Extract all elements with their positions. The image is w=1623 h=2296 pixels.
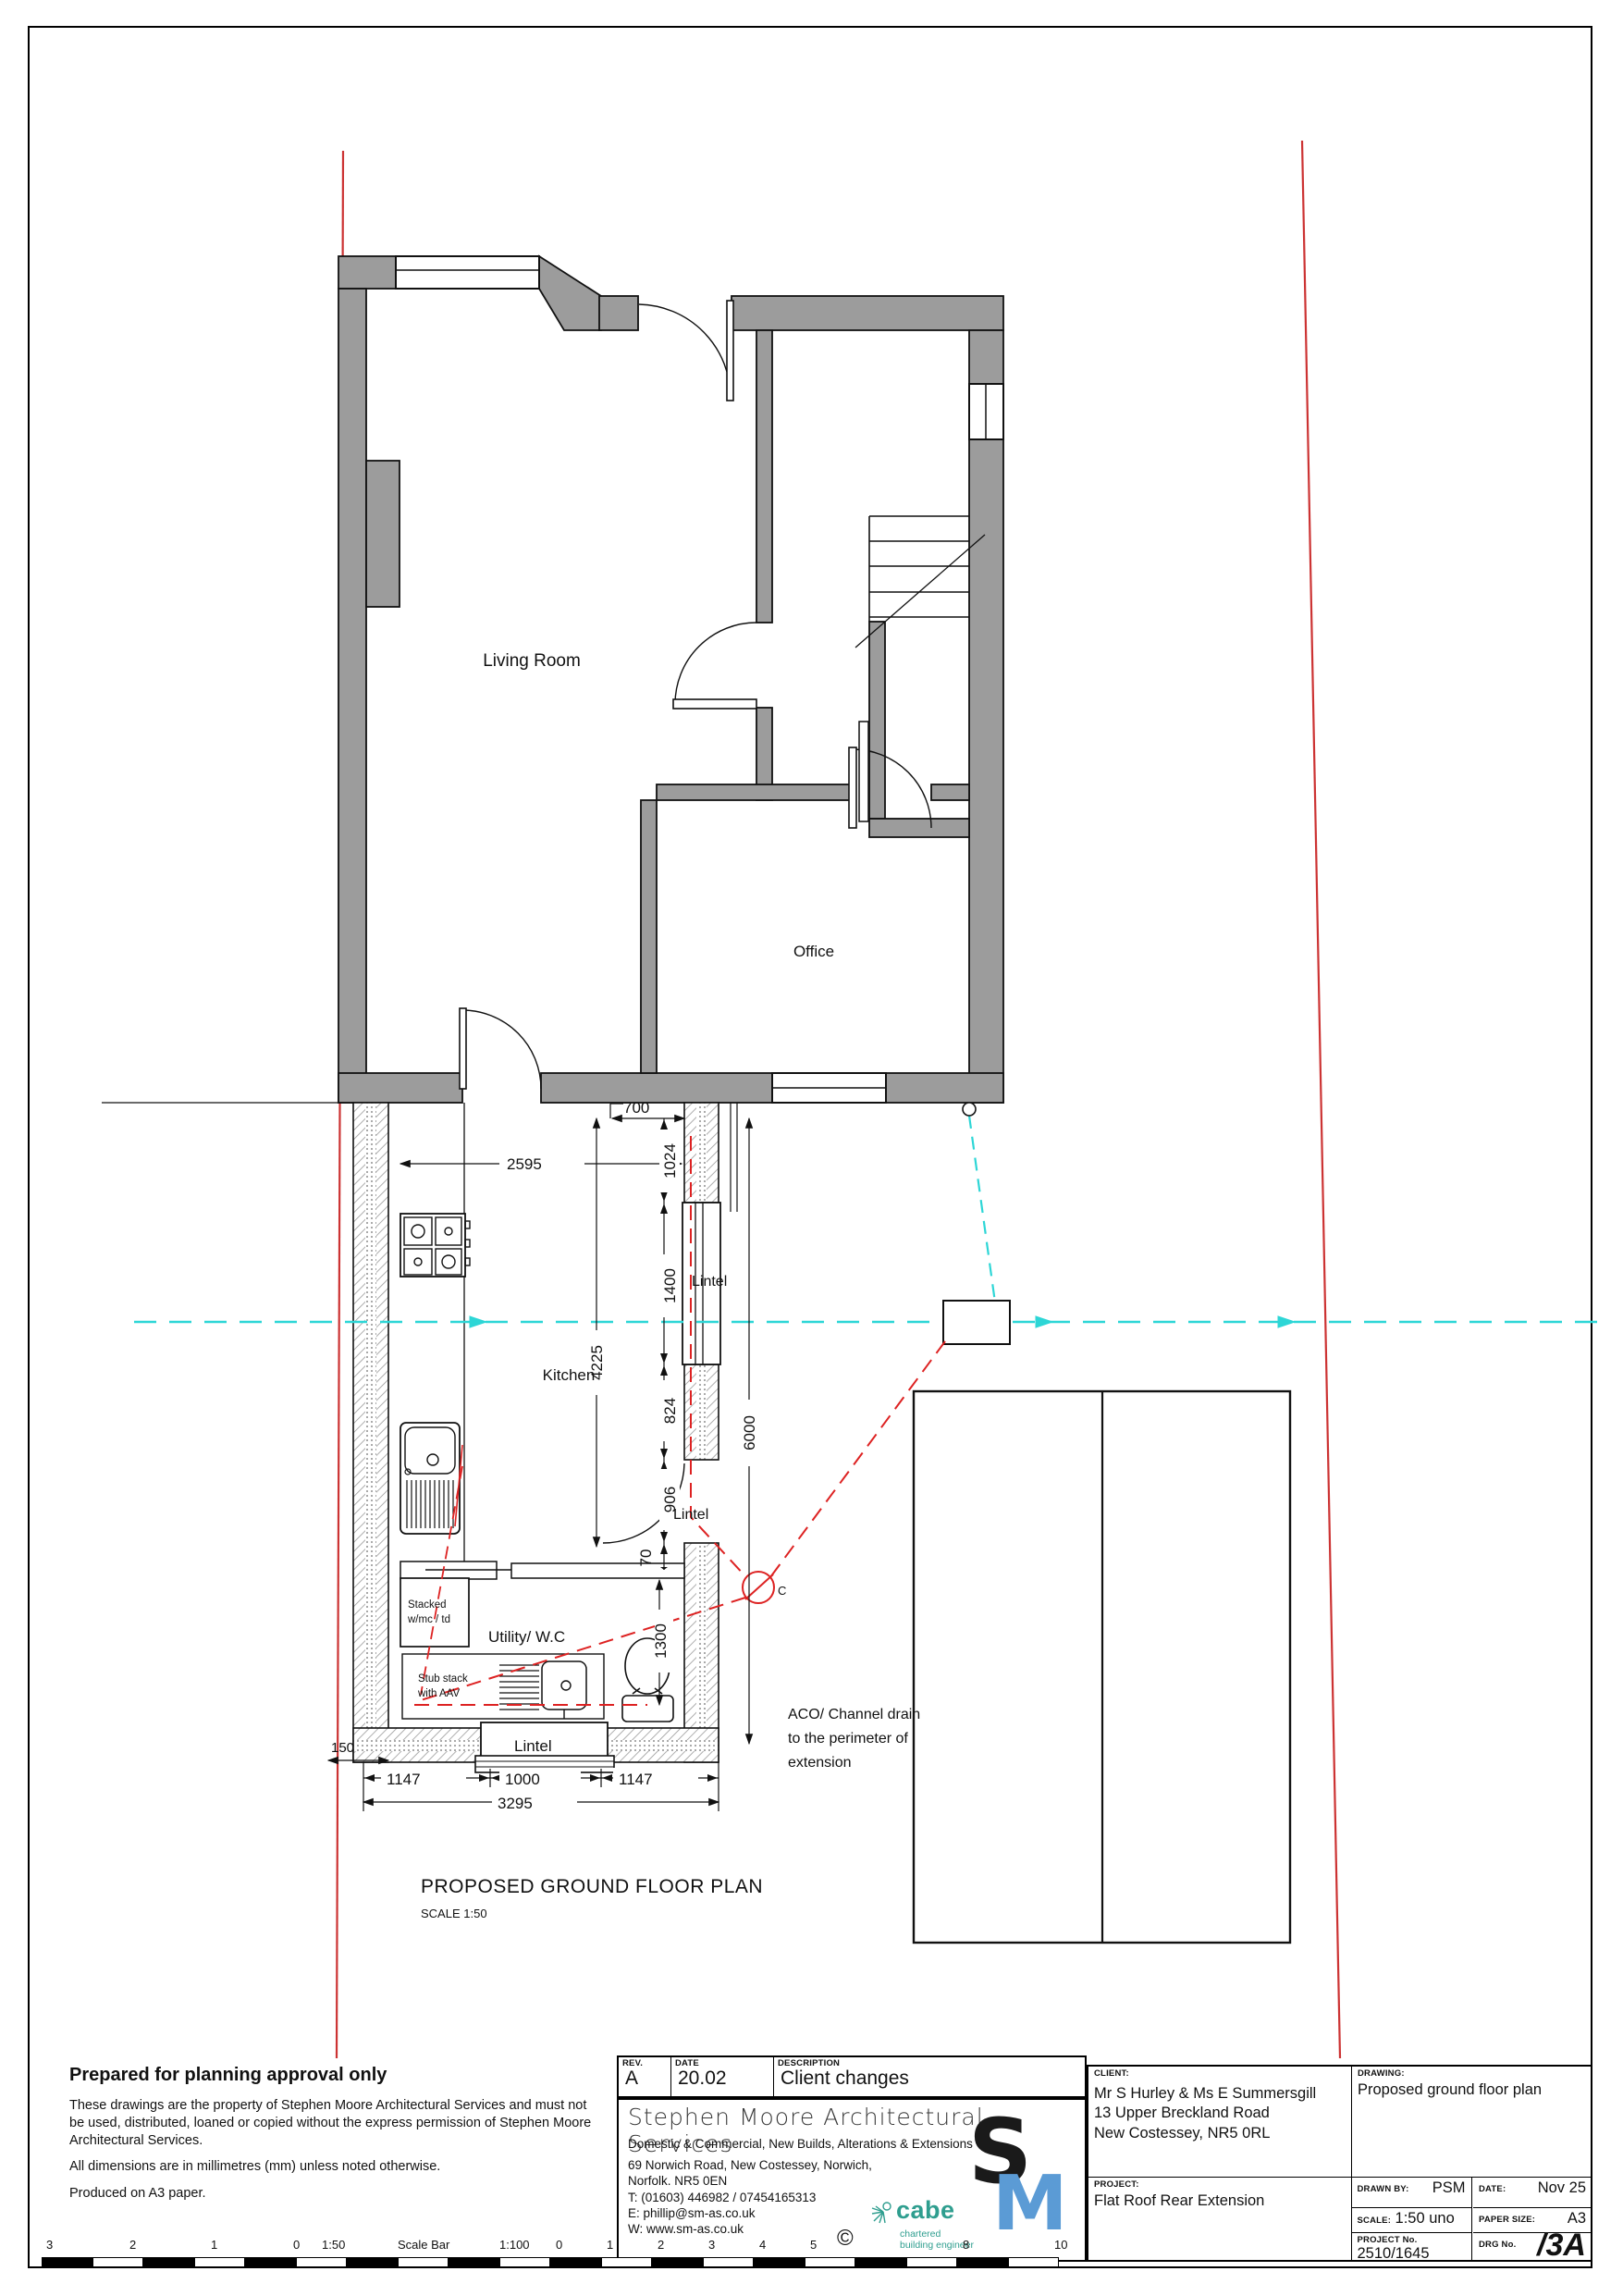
scale-bar-segment [296, 2257, 347, 2267]
scale-bar-segment [347, 2257, 398, 2267]
rear-window [772, 1073, 886, 1103]
svg-text:w/mc / td: w/mc / td [407, 1614, 450, 1625]
scale-bar-segment [194, 2257, 245, 2267]
aco-note: ACO/ Channel drain to the perimeter of e… [788, 1707, 920, 1771]
client-cell: CLIENT: Mr S Hurley & Ms E Summersgill 1… [1088, 2067, 1352, 2178]
plan-title: PROPOSED GROUND FLOOR PLAN SCALE 1:50 [421, 1876, 763, 1920]
scale-bar-segment [499, 2257, 550, 2267]
side-window [969, 384, 1003, 439]
sm-logo-m: M [992, 2166, 1068, 2242]
svg-text:1300: 1300 [652, 1623, 670, 1659]
svg-text:PROPOSED GROUND FLOOR PLAN: PROPOSED GROUND FLOOR PLAN [421, 1876, 763, 1897]
office-label: Office [793, 943, 834, 960]
scale-bar-number: 3 [46, 2238, 53, 2252]
svg-text:824: 824 [661, 1398, 679, 1424]
notes-title: Prepared for planning approval only [69, 2065, 592, 2086]
chamber-label: C [778, 1584, 786, 1598]
scale-bar-number: 2 [129, 2238, 136, 2252]
scale-bar-segment [805, 2257, 855, 2267]
svg-text:to the perimeter of: to the perimeter of [788, 1731, 908, 1747]
svg-text:Lintel: Lintel [514, 1737, 552, 1755]
scale-bar-segment [855, 2257, 906, 2267]
scale-bar-segment [143, 2257, 194, 2267]
scale-bar [42, 2257, 1059, 2267]
drg-no-cell: DRG No. /3A [1473, 2233, 1592, 2261]
utility-basin [402, 1654, 604, 1719]
washing-machine-stack [400, 1578, 469, 1647]
notes-paragraph: Produced on A3 paper. [69, 2185, 592, 2203]
svg-text:Lintel: Lintel [673, 1507, 708, 1523]
scale-bar-segment [398, 2257, 449, 2267]
living-room-label: Living Room [483, 651, 581, 671]
svg-text:150: 150 [331, 1740, 354, 1756]
rev-date-cell: DATE 20.02 [671, 2057, 774, 2096]
svg-text:Stacked: Stacked [408, 1599, 447, 1611]
living-room-door [673, 623, 756, 709]
rev-description-cell: DESCRIPTION Client changes [774, 2057, 1085, 2096]
cabe-starburst-icon [870, 2199, 896, 2229]
scale-bar-number: 1:100 [499, 2238, 530, 2252]
scale-bar-segment [703, 2257, 754, 2267]
scale-bar-number: 10 [1054, 2238, 1067, 2252]
project-cell: PROJECT: Flat Roof Rear Extension [1088, 2178, 1352, 2261]
svg-text:extension: extension [788, 1755, 852, 1771]
company-tagline: Domestic & Commercial, New Builds, Alter… [628, 2137, 973, 2151]
scale-bar-number: 4 [759, 2238, 766, 2252]
scale-bar-number: 2 [658, 2238, 664, 2252]
svg-text:2595: 2595 [507, 1155, 542, 1173]
svg-text:with AAV: with AAV [417, 1688, 460, 1699]
scale-bar-number: Scale Bar [398, 2238, 449, 2252]
svg-text:3295: 3295 [498, 1795, 533, 1812]
scale-bar-segment [754, 2257, 805, 2267]
scale-bar-number: 1:50 [322, 2238, 345, 2252]
scale-bar-number: 3 [708, 2238, 715, 2252]
drawn-by-cell: DRAWN BY: PSM [1351, 2178, 1472, 2208]
copyright-icon: © [837, 2226, 854, 2252]
scale-bar-segment [1008, 2257, 1059, 2267]
utility-label: Utility/ W.C [488, 1628, 565, 1646]
svg-text:Stub stack: Stub stack [418, 1673, 468, 1685]
company-phone: T: (01603) 446982 / 07454165313 [628, 2190, 872, 2205]
svg-text:1400: 1400 [661, 1268, 679, 1303]
svg-text:700: 700 [623, 1099, 649, 1117]
scale-bar-segment [652, 2257, 703, 2267]
scale-bar-number: 5 [810, 2238, 817, 2252]
rear-door-living-room [460, 1008, 541, 1089]
scale-bar-segment [906, 2257, 957, 2267]
bay-window [396, 256, 539, 289]
svg-text:SCALE 1:50: SCALE 1:50 [421, 1907, 487, 1920]
project-no-cell: PROJECT No. 2510/1645 [1351, 2233, 1472, 2261]
svg-text:1000: 1000 [505, 1771, 540, 1788]
company-website[interactable]: W: www.sm-as.co.uk [628, 2221, 872, 2237]
scale-bar-segment [601, 2257, 652, 2267]
scale-bar-segment [245, 2257, 296, 2267]
svg-text:1147: 1147 [387, 1771, 421, 1788]
svg-text:70: 70 [637, 1549, 655, 1567]
side-gate-lines [731, 1103, 737, 1212]
outbuilding [914, 1391, 1290, 1943]
company-box: Stephen Moore Architectural Services Dom… [617, 2098, 1087, 2262]
scale-bar-segment [42, 2257, 92, 2267]
hob [400, 1214, 470, 1277]
title-block: CLIENT: Mr S Hurley & Ms E Summersgill 1… [1087, 2065, 1592, 2262]
drawing-cell: DRAWING: Proposed ground floor plan [1352, 2067, 1592, 2178]
scale-bar-number: 1 [607, 2238, 613, 2252]
house-walls [338, 256, 1003, 1103]
svg-text:ACO/ Channel drain: ACO/ Channel drain [788, 1707, 920, 1722]
scale-bar-number: 8 [963, 2238, 969, 2252]
notes-paragraph: All dimensions are in millimetres (mm) u… [69, 2158, 592, 2176]
kitchen-label: Kitchen [543, 1366, 596, 1384]
understairs-cupboard-door [859, 722, 868, 821]
svg-text:1024: 1024 [661, 1143, 679, 1179]
svg-text:6000: 6000 [741, 1415, 758, 1450]
rev-cell: REV. A [619, 2057, 671, 2096]
svg-text:Lintel: Lintel [692, 1274, 727, 1290]
revision-strip: REV. A DATE 20.02 DESCRIPTION Client cha… [617, 2055, 1087, 2098]
scale-bar-segment [92, 2257, 143, 2267]
scale-bar-segment [957, 2257, 1008, 2267]
company-email[interactable]: E: phillip@sm-as.co.uk [628, 2205, 872, 2221]
scale-bar-number: 0 [293, 2238, 300, 2252]
manhole [943, 1301, 1010, 1344]
date-cell: DATE: Nov 25 [1473, 2178, 1592, 2208]
scale-bar-number: 0 [556, 2238, 562, 2252]
scale-bar-segment [550, 2257, 601, 2267]
svg-text:1147: 1147 [619, 1771, 653, 1788]
scale-bar-number: 1 [211, 2238, 217, 2252]
notes-paragraph: These drawings are the property of Steph… [69, 2097, 592, 2150]
drawing-sheet: C [0, 0, 1623, 2296]
floor-plan-drawing: C [0, 0, 1623, 2063]
front-door [639, 301, 733, 401]
company-address: 69 Norwich Road, New Costessey, Norwich,… [628, 2157, 872, 2237]
kitchen-sink [400, 1423, 460, 1534]
cabe-logo: cabe chartered building engineer [870, 2196, 990, 2251]
planning-notes: Prepared for planning approval only Thes… [69, 2065, 592, 2211]
scale-bar-segment [449, 2257, 499, 2267]
scale-cell: SCALE: 1:50 uno [1351, 2208, 1472, 2233]
